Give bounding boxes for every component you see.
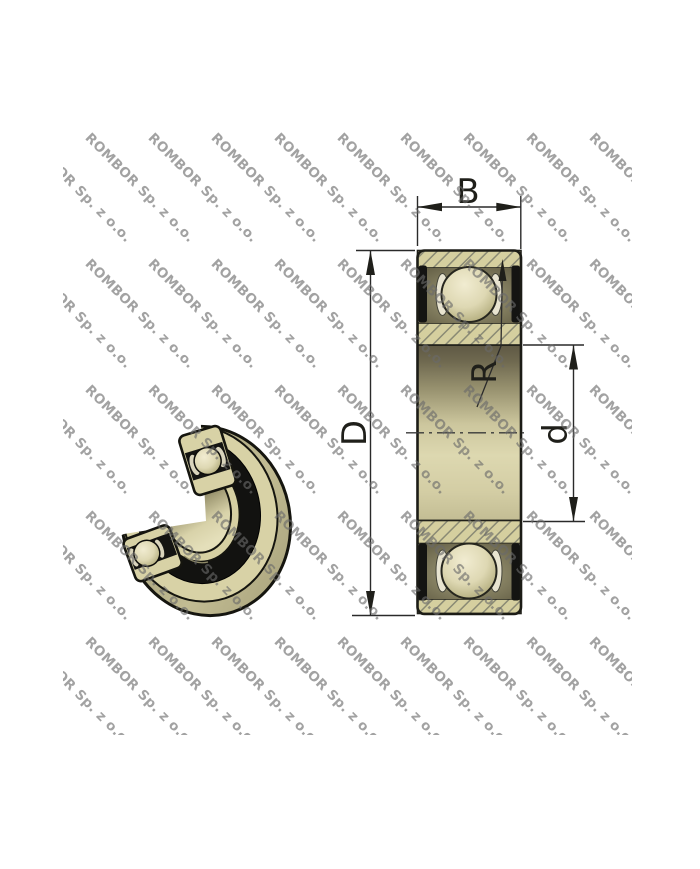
bearing-catalog-image: B D d R ROMBOR Sp. z o.o.ROMBOR Sp. z o.… (0, 0, 700, 869)
section-outer-ring-top (418, 251, 522, 269)
section-outer-ring-bottom (418, 599, 522, 614)
section-inner-ring-bottom (418, 521, 522, 544)
arrow-b-right (496, 203, 521, 212)
bearing-cross-section (406, 251, 524, 615)
seal-top-left (419, 266, 428, 323)
arrow-d-bore-bottom (569, 497, 578, 522)
arrow-b-left (418, 203, 443, 212)
arrow-d-outer-top (366, 251, 375, 276)
label-radius-R: R (465, 360, 505, 384)
seal-bottom-right (512, 544, 521, 601)
label-outer-diameter-D: D (335, 420, 375, 446)
seal-bottom-left (419, 544, 428, 601)
label-width-B: B (456, 172, 479, 212)
ball-top (442, 267, 497, 322)
ball-bottom (442, 544, 497, 599)
bearing-drawing-canvas: B D d R (0, 0, 700, 869)
arrow-d-outer-bottom (366, 591, 375, 616)
seal-top-right (512, 266, 521, 323)
arrow-d-bore-top (569, 345, 578, 370)
label-bore-diameter-d: d (536, 423, 576, 445)
bearing-3d-cutaway (60, 394, 308, 631)
section-inner-ring-top (418, 323, 522, 345)
